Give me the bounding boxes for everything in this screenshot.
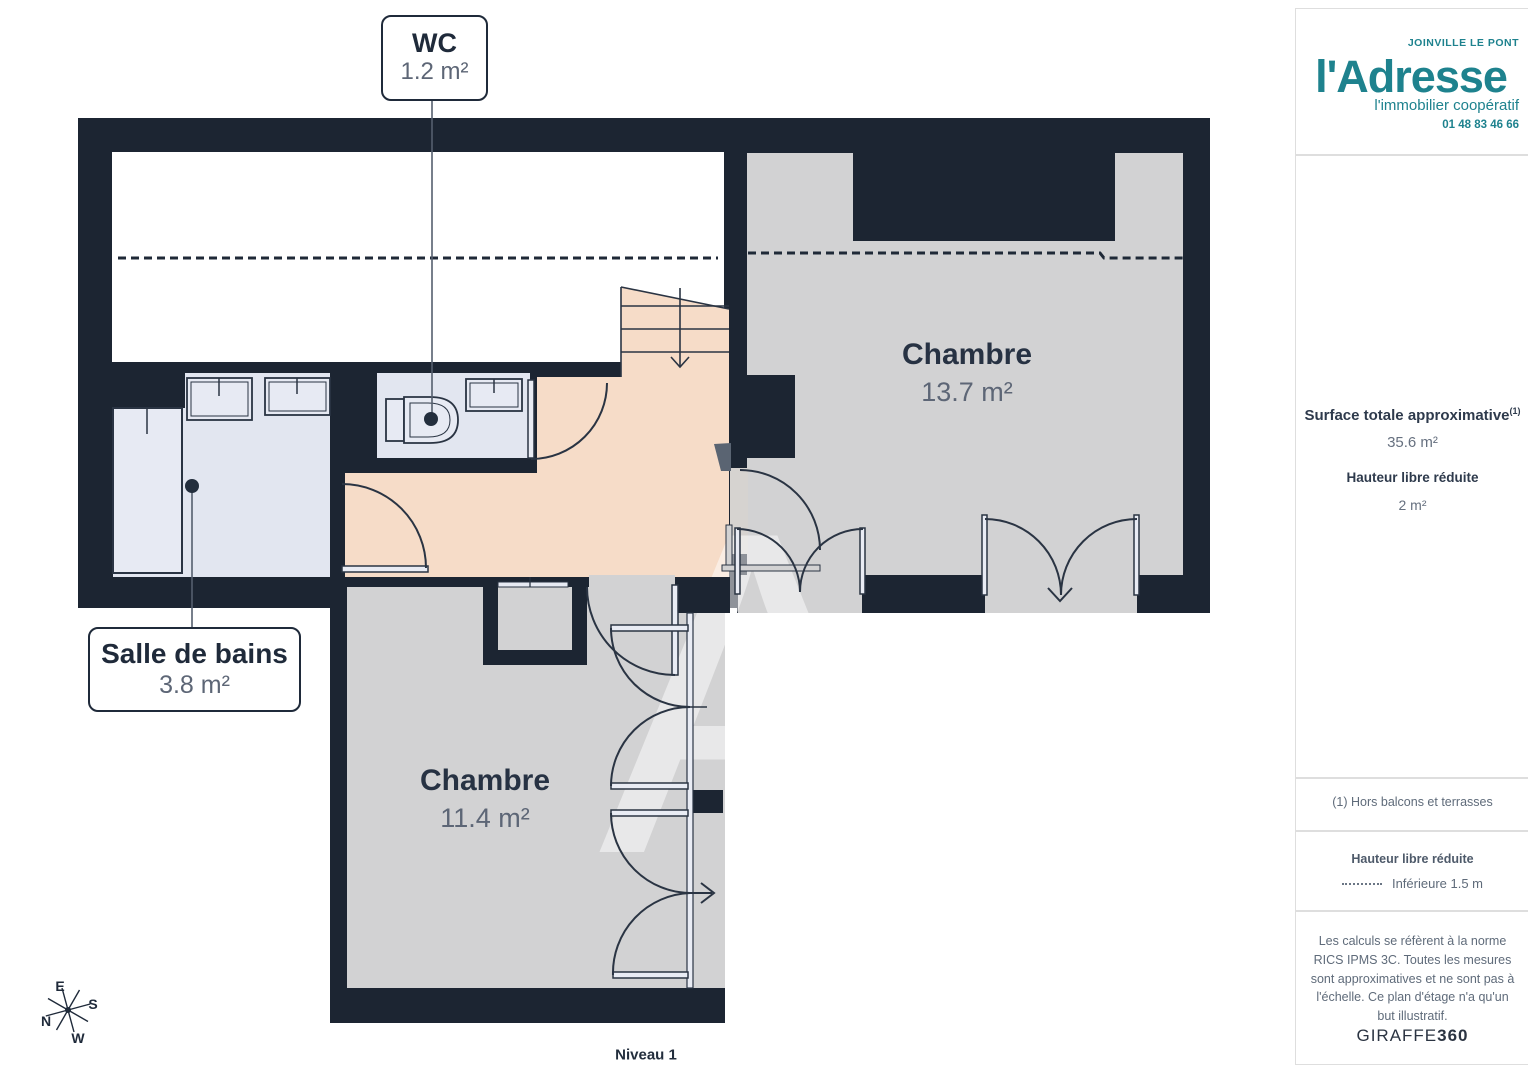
disclaimer-panel: Les calculs se réfèrent à la norme RICS … — [1295, 911, 1528, 1065]
wc-label-box: WC 1.2 m² — [381, 15, 488, 101]
logo-phone: 01 48 83 46 66 — [1442, 119, 1519, 131]
surface-total-sup: (1) — [1510, 406, 1521, 416]
compass-n: N — [41, 1013, 51, 1029]
bedroom-top-area: 13.7 m² — [902, 372, 1032, 412]
disclaimer-text: Les calculs se réfèrent à la norme RICS … — [1310, 932, 1515, 1026]
bedroom-bottom-label: Chambre 11.4 m² — [420, 764, 550, 838]
logo-tagline: l'immobilier coopératif — [1374, 97, 1519, 114]
bathroom-label-box: Salle de bains 3.8 m² — [88, 627, 301, 712]
legend-title: Hauteur libre réduite — [1296, 852, 1528, 866]
legend-panel: Hauteur libre réduite Inférieure 1.5 m — [1295, 831, 1528, 911]
bathroom-name: Salle de bains — [101, 639, 288, 670]
bedroom-bottom-name: Chambre — [420, 764, 550, 798]
floorplan-page: A — [0, 0, 1528, 1080]
vendor-logo: GIRAFFE360 — [1296, 1026, 1528, 1046]
floorplan-drawing: A — [0, 0, 1290, 1080]
compass-rose — [46, 988, 90, 1032]
wc-area: 1.2 m² — [400, 58, 468, 87]
summary-panel: Surface totale approximative(1) 35.6 m² … — [1295, 155, 1528, 778]
bedroom-top-name: Chambre — [902, 338, 1032, 372]
dashed-line-sample — [1342, 883, 1382, 886]
surface-total-label: Surface totale approximative(1) — [1296, 406, 1528, 424]
surface-total-text: Surface totale approximative — [1304, 407, 1509, 424]
compass-s: S — [88, 996, 97, 1012]
vendor-name: GIRAFFE — [1356, 1026, 1437, 1045]
compass-e: E — [55, 978, 64, 994]
toilet-tank — [386, 399, 404, 441]
bathroom-area: 3.8 m² — [159, 670, 230, 700]
level-label: Niveau 1 — [615, 1047, 677, 1064]
logo-panel: JOINVILLE LE PONT l'Adresse l'immobilier… — [1295, 8, 1528, 155]
logo-city: JOINVILLE LE PONT — [1408, 37, 1519, 49]
legend-row: Inférieure 1.5 m — [1296, 876, 1528, 891]
compass-w: W — [71, 1030, 84, 1046]
reduced-height-label: Hauteur libre réduite — [1296, 470, 1528, 485]
bedroom-bottom-area: 11.4 m² — [420, 798, 550, 838]
wc-name: WC — [412, 29, 457, 59]
footnote-panel: (1) Hors balcons et terrasses — [1295, 778, 1528, 831]
legend-entry: Inférieure 1.5 m — [1392, 876, 1483, 891]
footnote-text: (1) Hors balcons et terrasses — [1296, 795, 1528, 809]
vendor-suffix: 360 — [1437, 1026, 1468, 1045]
brand-logo: l'Adresse — [1304, 51, 1518, 103]
reduced-height-value: 2 m² — [1296, 497, 1528, 513]
bedroom-top-label: Chambre 13.7 m² — [902, 338, 1032, 412]
surface-total-value: 35.6 m² — [1296, 434, 1528, 451]
